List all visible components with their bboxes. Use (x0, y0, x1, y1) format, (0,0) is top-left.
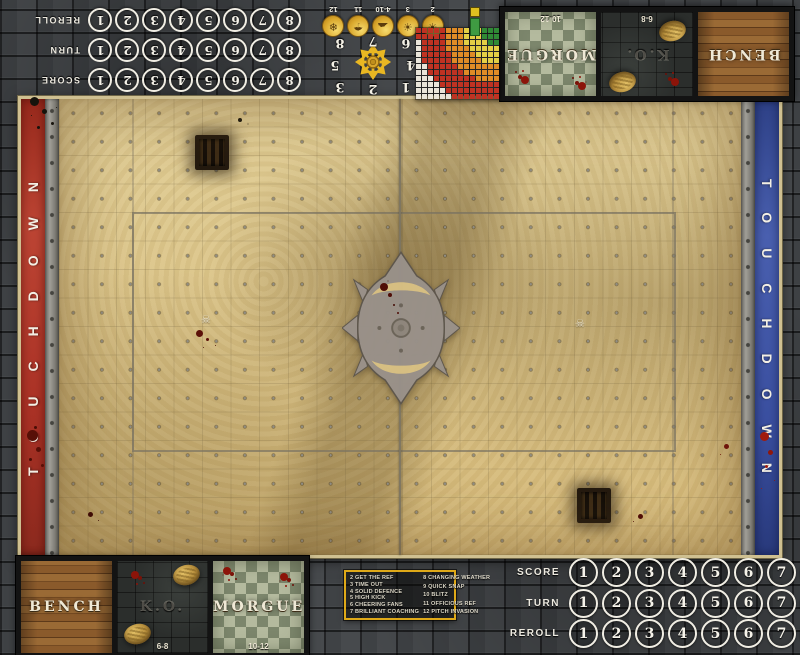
range-ruler-cell (458, 34, 463, 39)
tracker-row-label: REROLL (502, 628, 567, 639)
tracker-number-circle: 3 (635, 589, 664, 618)
tracker-number-circle: 6 (224, 38, 248, 62)
tracker-number-circle: 5 (701, 558, 730, 587)
blood-splat-icon (380, 283, 388, 291)
blood-splat-icon (88, 512, 93, 517)
kickoff-entry: 10 BLITZ (423, 592, 490, 598)
tracker-number-circle: 7 (767, 589, 796, 618)
tracker-number-circle: 2 (602, 558, 631, 587)
straw-pile-icon (171, 562, 202, 588)
weather-roll-label: 3 (406, 5, 410, 14)
range-ruler-cell (452, 76, 457, 81)
skull-icon: ☠ (575, 317, 585, 330)
range-ruler-cell (452, 58, 457, 63)
range-ruler-cell (452, 94, 457, 99)
tracker-number-circle: 2 (602, 619, 631, 648)
range-ruler-cell (470, 64, 475, 69)
tracker-number-circle: 1 (569, 619, 598, 648)
tracker-row-label: REROLL (24, 15, 87, 25)
scatter-number: 5 (328, 57, 342, 72)
trapdoor-icon (195, 135, 229, 170)
range-ruler-cell (458, 82, 463, 87)
range-ruler-cell (440, 40, 445, 45)
blood-splat-icon (196, 330, 203, 337)
tracker-number-circle: 3 (635, 558, 664, 587)
scatter-number: 1 (399, 79, 413, 94)
range-ruler-cell (488, 52, 493, 57)
range-ruler-cell (452, 88, 457, 93)
tracker-number-circle: 6 (224, 8, 248, 32)
range-ruler-cell (428, 40, 433, 45)
scatter-number: 6 (399, 35, 413, 50)
range-ruler-cell (416, 94, 421, 99)
range-ruler-cell (482, 46, 487, 51)
range-ruler-cell (440, 82, 445, 87)
tracker-number-circle: 5 (197, 68, 221, 92)
range-ruler-cell (446, 28, 451, 33)
dugout-panel-label: BENCH (21, 599, 112, 615)
kickoff-entry: 11 OFFICIOUS REF (423, 601, 490, 607)
range-ruler-cell (482, 94, 487, 99)
range-ruler-cell (446, 70, 451, 75)
range-ruler-cell (482, 40, 487, 45)
range-ruler-cell (476, 46, 481, 51)
range-ruler-cell (422, 82, 427, 87)
kickoff-table: 2 GET THE REF3 TIME OUT4 SOLID DEFENCE5 … (344, 570, 456, 620)
range-ruler-cell (458, 40, 463, 45)
tracker-row: TURN12345678 (502, 589, 790, 618)
range-ruler-cell (422, 94, 427, 99)
range-ruler-cell (494, 70, 499, 75)
range-ruler-cell (422, 88, 427, 93)
range-ruler-cell (422, 70, 427, 75)
dugout-panel-label: K.O. (117, 599, 208, 615)
dugout-dice-range: 10-12 (505, 14, 596, 23)
scatter-number: 7 (366, 33, 380, 48)
range-ruler-cell (464, 64, 469, 69)
range-ruler-cell (452, 34, 457, 39)
tracker-number-circle: 2 (116, 8, 140, 32)
tracker-number-circle: 1 (89, 8, 113, 32)
tracker-number-circle: 7 (251, 68, 275, 92)
blood-splat-icon (238, 118, 242, 122)
range-ruler-cell (434, 52, 439, 57)
game-mat: TOUCHDOWN ☠ ☠ (0, 0, 800, 655)
tracker-row: REROLL12345678 (24, 8, 314, 32)
range-ruler-cell (440, 70, 445, 75)
range-ruler-cell (476, 58, 481, 63)
straw-pile-icon (607, 69, 638, 95)
pitch-board: TOUCHDOWN ☠ ☠ (18, 96, 782, 558)
range-ruler-cell (488, 76, 493, 81)
weather-roll-label: 4-10 (376, 5, 391, 14)
tracker-number-circle: 7 (767, 558, 796, 587)
touchdown-left-label: TOUCHDOWN (25, 157, 41, 476)
tracker-number-circle: 5 (701, 589, 730, 618)
tracker-number-circle: 8 (278, 38, 302, 62)
endzone-right: TOUCHDOWN (755, 99, 779, 555)
range-ruler-cell (452, 52, 457, 57)
range-ruler-cell (434, 58, 439, 63)
range-ruler-cell (476, 76, 481, 81)
range-ruler-cell (434, 88, 439, 93)
range-ruler-cell (422, 46, 427, 51)
range-ruler-cell (470, 76, 475, 81)
range-ruler-cell (470, 52, 475, 57)
tracker-row: SCORE12345678 (502, 558, 790, 587)
tracker-number-circle: 7 (767, 619, 796, 648)
dugout-home: BENCHK.O.6-8MORGUE10-12 (16, 556, 309, 655)
range-ruler-cell (464, 28, 469, 33)
range-ruler-cell (422, 58, 427, 63)
range-ruler-cell (464, 58, 469, 63)
range-ruler-cell (434, 28, 439, 33)
range-ruler-cell (446, 46, 451, 51)
range-ruler-cell (482, 64, 487, 69)
dugout-panel-morgue: MORGUE10-12 (505, 12, 596, 96)
range-ruler-cell (464, 76, 469, 81)
range-ruler-cell (494, 88, 499, 93)
blood-splat-icon (280, 573, 288, 581)
range-ruler-cell (434, 76, 439, 81)
dugout-panel-label: K.O. (601, 46, 692, 62)
range-ruler-cell (440, 34, 445, 39)
range-ruler-cell (428, 58, 433, 63)
ink-splat-icon (30, 97, 39, 106)
blood-splat-icon (760, 432, 769, 441)
kickoff-entry: 9 QUICK SNAP (423, 584, 490, 590)
range-ruler-cell (440, 94, 445, 99)
range-ruler-cell (458, 88, 463, 93)
range-ruler-cell (446, 52, 451, 57)
blood-splat-icon (638, 514, 643, 519)
blood-splat-icon (724, 444, 729, 449)
range-ruler-cell (464, 88, 469, 93)
tracker-number-circle: 1 (89, 68, 113, 92)
range-ruler-cell (494, 34, 499, 39)
range-ruler-cell (434, 46, 439, 51)
kickoff-entry: 5 HIGH KICK (350, 595, 419, 601)
skull-icon: ☠ (201, 313, 211, 326)
range-ruler-cell (476, 70, 481, 75)
range-ruler-cell (440, 52, 445, 57)
tracker-number-circle: 2 (116, 38, 140, 62)
range-ruler-cell (470, 70, 475, 75)
tracker-number-circle: 6 (734, 589, 763, 618)
range-ruler (415, 27, 500, 100)
tracker-row: TURN12345678 (24, 38, 314, 62)
tracker-row: SCORE12345678 (24, 68, 314, 92)
range-ruler-cell (482, 58, 487, 63)
range-ruler-cell (416, 64, 421, 69)
blood-splat-icon (578, 82, 586, 90)
kickoff-entry: 4 SOLID DEFENCE (350, 589, 419, 595)
range-ruler-cell (452, 70, 457, 75)
range-ruler-cell (476, 88, 481, 93)
range-ruler-cell (494, 82, 499, 87)
kickoff-column: 2 GET THE REF3 TIME OUT4 SOLID DEFENCE5 … (350, 575, 419, 615)
range-ruler-cell (482, 88, 487, 93)
tracker-number-circle: 6 (734, 619, 763, 648)
tracker-number-circle: 6 (734, 558, 763, 587)
range-ruler-cell (452, 40, 457, 45)
range-ruler-cell (416, 40, 421, 45)
range-ruler-cell (452, 64, 457, 69)
tracker-opponent: SCORE12345678TURN12345678REROLL12345678 (24, 8, 314, 92)
range-ruler-cell (428, 34, 433, 39)
range-ruler-cell (440, 46, 445, 51)
dugout-panel-label: MORGUE (213, 599, 304, 615)
tracker-number-circle: 1 (569, 589, 598, 618)
range-ruler-cell (416, 88, 421, 93)
range-ruler-cell (422, 28, 427, 33)
tracker-number-circle: 7 (251, 38, 275, 62)
tracker-number-circle: 3 (143, 68, 167, 92)
range-ruler-cell (446, 64, 451, 69)
range-ruler-cell (416, 70, 421, 75)
range-ruler-cell (434, 34, 439, 39)
tracker-number-circle: 2 (602, 589, 631, 618)
endzone-left: TOUCHDOWN (21, 99, 45, 555)
range-ruler-cell (416, 52, 421, 57)
range-ruler-cell (452, 82, 457, 87)
range-ruler-cell (452, 46, 457, 51)
marker-yellow-icon (470, 7, 480, 17)
blood-splat-icon (521, 76, 529, 84)
tracker-row: REROLL12345678 (502, 619, 790, 648)
tracker-home: SCORE12345678TURN12345678REROLL12345678 (502, 558, 790, 648)
range-ruler-cell (476, 40, 481, 45)
range-ruler-cell (458, 70, 463, 75)
dugout-opponent: BENCHK.O.6-8MORGUE10-12 (500, 7, 794, 101)
range-ruler-cell (488, 88, 493, 93)
range-ruler-cell (482, 76, 487, 81)
scatter-number: 3 (333, 79, 347, 94)
range-ruler-cell (464, 70, 469, 75)
range-ruler-cell (476, 52, 481, 57)
tracker-row-label: SCORE (502, 567, 567, 578)
kickoff-column: 8 CHANGING WEATHER9 QUICK SNAP10 BLITZ11… (423, 575, 490, 615)
tracker-number-circle: 1 (569, 558, 598, 587)
range-ruler-cell (416, 76, 421, 81)
range-ruler-cell (422, 64, 427, 69)
range-ruler-cell (470, 46, 475, 51)
range-ruler-cell (464, 52, 469, 57)
weather-roll-label: 11 (354, 5, 362, 14)
center-emblem-icon (342, 250, 460, 406)
dugout-panel-ko: K.O.6-8 (117, 561, 208, 653)
range-ruler-cell (470, 82, 475, 87)
scatter-number: 8 (333, 35, 347, 50)
range-ruler-cell (494, 94, 499, 99)
range-ruler-cell (446, 82, 451, 87)
tracker-number-circle: 4 (170, 8, 194, 32)
kickoff-entry: 2 GET THE REF (350, 575, 419, 581)
pitch-field: ☠ ☠ (59, 99, 741, 555)
range-ruler-cell (476, 82, 481, 87)
range-ruler-cell (434, 40, 439, 45)
range-ruler-cell (494, 52, 499, 57)
range-ruler-cell (440, 64, 445, 69)
weather-roll-label: 2 (431, 5, 435, 14)
range-ruler-cell (470, 94, 475, 99)
tracker-number-circle: 5 (197, 38, 221, 62)
range-ruler-cell (482, 82, 487, 87)
range-ruler-cell (488, 28, 493, 33)
tracker-number-circle: 3 (635, 619, 664, 648)
range-ruler-cell (422, 76, 427, 81)
range-ruler-cell (458, 28, 463, 33)
tracker-number-circle: 7 (251, 8, 275, 32)
range-ruler-cell (488, 46, 493, 51)
tracker-number-circle: 3 (143, 38, 167, 62)
range-ruler-cell (446, 58, 451, 63)
range-ruler-cell (416, 28, 421, 33)
range-ruler-cell (428, 28, 433, 33)
range-ruler-cell (458, 46, 463, 51)
range-ruler-cell (428, 70, 433, 75)
range-ruler-cell (452, 28, 457, 33)
dugout-panel-bench: BENCH (698, 12, 789, 96)
range-ruler-cell (458, 52, 463, 57)
kickoff-entry: 8 CHANGING WEATHER (423, 575, 490, 581)
range-ruler-cell (488, 40, 493, 45)
range-ruler-cell (494, 76, 499, 81)
kickoff-entry: 6 CHEERING FANS (350, 602, 419, 608)
range-ruler-cell (446, 94, 451, 99)
range-ruler-cell (488, 64, 493, 69)
dugout-panel-bench: BENCH (21, 561, 112, 653)
range-ruler-cell (494, 58, 499, 63)
range-ruler-cell (428, 94, 433, 99)
tracker-row-label: TURN (24, 45, 87, 55)
range-ruler-cell (428, 76, 433, 81)
range-ruler-cell (488, 58, 493, 63)
blood-splat-icon (131, 571, 139, 579)
range-ruler-cell (434, 70, 439, 75)
dugout-panel-morgue: MORGUE10-12 (213, 561, 304, 653)
range-ruler-cell (464, 40, 469, 45)
blood-splat-icon (223, 567, 231, 575)
range-ruler-cell (446, 34, 451, 39)
endzone-line-right (741, 99, 755, 555)
range-ruler-cell (464, 82, 469, 87)
range-ruler-cell (470, 40, 475, 45)
range-ruler-cell (494, 46, 499, 51)
tracker-number-circle: 4 (668, 589, 697, 618)
marker-green-icon (470, 18, 480, 36)
range-ruler-cell (428, 46, 433, 51)
kickoff-entry: 7 BRILLIANT COACHING (350, 609, 419, 615)
kickoff-entry: 12 PITCH INVASION (423, 609, 490, 615)
range-ruler-cell (458, 58, 463, 63)
tracker-number-circle: 2 (116, 68, 140, 92)
endzone-line-left (45, 99, 59, 555)
range-ruler-cell (416, 46, 421, 51)
kickoff-entry: 3 TIME OUT (350, 582, 419, 588)
range-ruler-cell (470, 58, 475, 63)
range-ruler-cell (482, 28, 487, 33)
range-ruler-cell (422, 40, 427, 45)
blood-splat-icon (27, 430, 38, 441)
range-ruler-cell (476, 64, 481, 69)
range-ruler-cell (488, 70, 493, 75)
pitch-marker (470, 7, 479, 36)
tracker-number-circle: 3 (143, 8, 167, 32)
range-ruler-cell (458, 64, 463, 69)
range-ruler-cell (428, 82, 433, 87)
range-ruler-cell (476, 94, 481, 99)
range-ruler-cell (434, 64, 439, 69)
tracker-row-label: SCORE (24, 75, 87, 85)
range-ruler-cell (440, 58, 445, 63)
dugout-dice-range: 10-12 (213, 642, 304, 651)
dugout-panel-label: MORGUE (505, 46, 596, 62)
range-ruler-cell (494, 64, 499, 69)
range-ruler-cell (440, 28, 445, 33)
range-ruler-cell (434, 82, 439, 87)
trapdoor-icon (577, 488, 611, 523)
tracker-number-circle: 4 (170, 68, 194, 92)
range-ruler-cell (416, 58, 421, 63)
tracker-number-circle: 8 (278, 8, 302, 32)
range-ruler-cell (488, 34, 493, 39)
range-ruler-cell (428, 52, 433, 57)
range-ruler-cell (440, 88, 445, 93)
scatter-template: 12345678 (329, 31, 417, 93)
range-ruler-cell (416, 34, 421, 39)
dugout-panel-label: BENCH (698, 46, 789, 62)
range-ruler-cell (494, 28, 499, 33)
range-ruler-cell (458, 94, 463, 99)
range-ruler-cell (434, 94, 439, 99)
dugout-panel-ko: K.O.6-8 (601, 12, 692, 96)
tracker-number-circle: 4 (170, 38, 194, 62)
range-ruler-cell (416, 82, 421, 87)
range-ruler-cell (470, 88, 475, 93)
range-ruler-cell (440, 76, 445, 81)
touchdown-right-label: TOUCHDOWN (759, 179, 775, 498)
range-ruler-cell (488, 94, 493, 99)
range-ruler-cell (422, 52, 427, 57)
blood-splat-icon (671, 78, 679, 86)
range-ruler-cell (482, 70, 487, 75)
tracker-number-circle: 8 (278, 68, 302, 92)
range-ruler-cell (482, 34, 487, 39)
range-ruler-cell (422, 34, 427, 39)
range-ruler-cell (488, 82, 493, 87)
range-ruler-cell (458, 76, 463, 81)
range-ruler-cell (464, 46, 469, 51)
tracker-number-circle: 6 (224, 68, 248, 92)
range-ruler-cell (464, 94, 469, 99)
range-ruler-cell (428, 88, 433, 93)
tracker-number-circle: 1 (89, 38, 113, 62)
tracker-number-circle: 4 (668, 619, 697, 648)
range-ruler-cell (428, 64, 433, 69)
range-ruler-cell (482, 52, 487, 57)
weather-roll-label: 12 (329, 5, 337, 14)
scatter-number: 2 (366, 81, 380, 96)
tracker-number-circle: 5 (197, 8, 221, 32)
tracker-number-circle: 5 (701, 619, 730, 648)
tracker-number-circle: 4 (668, 558, 697, 587)
range-ruler-cell (446, 76, 451, 81)
range-ruler-cell (446, 40, 451, 45)
tracker-row-label: TURN (502, 598, 567, 609)
range-ruler-cell (494, 40, 499, 45)
range-ruler-cell (446, 88, 451, 93)
